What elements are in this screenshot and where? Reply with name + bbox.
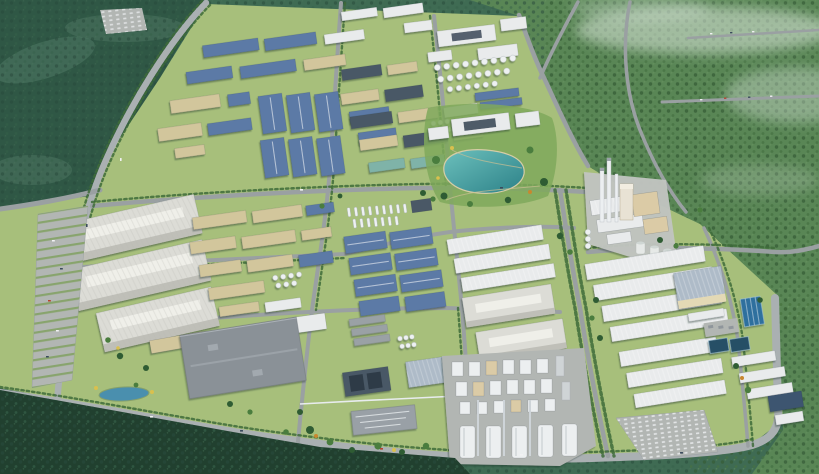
parking-lot-northwest	[100, 8, 147, 34]
aerial-render-canvas: Aerial bird's-eye rendering of an indust…	[0, 0, 819, 474]
lakefront-campus	[424, 104, 557, 207]
chemical-plant	[442, 348, 596, 466]
preheater-tower	[620, 184, 633, 220]
central-lake	[444, 150, 524, 194]
industrial-park-aerial-render: Aerial bird's-eye rendering of an indust…	[0, 0, 819, 474]
